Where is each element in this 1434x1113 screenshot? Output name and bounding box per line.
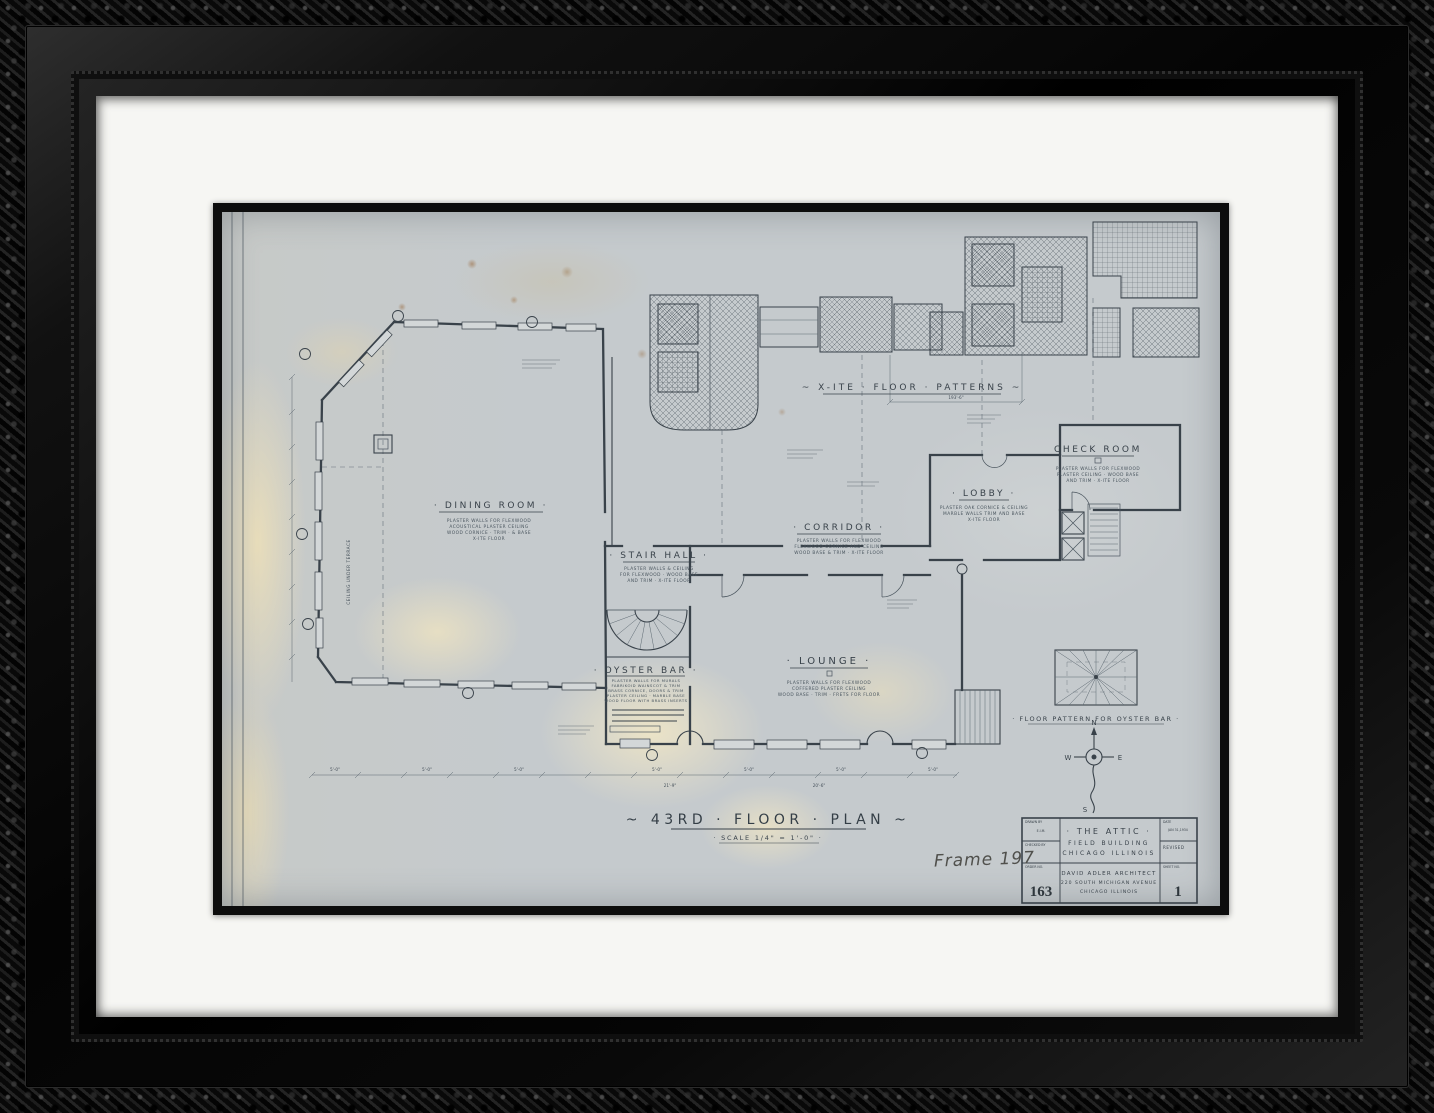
svg-text:PLASTER WALLS FOR FLEXWOOD: PLASTER WALLS FOR FLEXWOOD <box>447 518 532 524</box>
project-name: · THE ATTIC · <box>1067 827 1152 836</box>
checked-label: CHECKED BY <box>1025 843 1045 847</box>
svg-text:AND TRIM · X-ITE FLOOR: AND TRIM · X-ITE FLOOR <box>1066 478 1129 484</box>
svg-text:~ X-ITE · FLOOR · PATTERNS ~: ~ X-ITE · FLOOR · PATTERNS ~ <box>802 383 1023 393</box>
svg-text:WOOD BASE · TRIM · FRETS FOR F: WOOD BASE · TRIM · FRETS FOR FLOOR <box>778 692 880 698</box>
floor-plan-drawing: 5'-0" 5'-0" 5'-0" 5'-0" 5'-0" 5'-0" 5'-0… <box>222 212 1220 906</box>
stair-flights <box>955 504 1120 744</box>
svg-text:5'-0": 5'-0" <box>422 767 432 772</box>
svg-text:PLASTER OAK CORNICE & CEILING: PLASTER OAK CORNICE & CEILING <box>940 505 1028 511</box>
lobby-label: · LOBBY · <box>952 489 1016 499</box>
photograph: 5'-0" 5'-0" 5'-0" 5'-0" 5'-0" 5'-0" 5'-0… <box>213 203 1229 915</box>
patterns-title: ~ X-ITE · FLOOR · PATTERNS ~ <box>802 383 1023 394</box>
sheet-no-value: 1 <box>1174 884 1182 900</box>
svg-text:COFFERED PLASTER CEILING: COFFERED PLASTER CEILING <box>792 686 866 692</box>
compass-rose: N W E S <box>1065 719 1123 814</box>
revised-label: REVISED <box>1163 845 1185 850</box>
handwritten-frame-number: Frame 197 <box>934 848 1036 872</box>
drawing-title: ~ 43RD · FLOOR · PLAN ~ <box>626 812 911 828</box>
terrace-note: CEILING UNDER TERRACE <box>346 539 352 605</box>
oyster-bar-label: · OYSTER BAR · <box>594 666 699 676</box>
architect-name: DAVID ADLER ARCHITECT <box>1061 871 1156 877</box>
date-value: JAN 31,1934 <box>1167 828 1188 832</box>
svg-text:PLASTER WALLS FOR FLEXWOOD: PLASTER WALLS FOR FLEXWOOD <box>1056 466 1141 472</box>
date-label: DATE <box>1163 820 1171 824</box>
sheet-no-label: SHEET NO. <box>1163 865 1180 869</box>
room-label-check-room: CHECK ROOM PLASTER WALLS FOR FLEXWOOD PL… <box>1054 445 1142 484</box>
corridor-label: · CORRIDOR · <box>793 523 884 533</box>
compass-west: W <box>1065 754 1072 762</box>
svg-text:PLASTER WALLS FOR FLEXWOOD: PLASTER WALLS FOR FLEXWOOD <box>787 680 872 686</box>
svg-text:X-ITE FLOOR: X-ITE FLOOR <box>968 517 1000 523</box>
svg-text:FLEXWOOD CORNICE AND CEILING: FLEXWOOD CORNICE AND CEILING <box>794 544 883 550</box>
room-label-oyster-bar: · OYSTER BAR · PLASTER WALLS FOR MURALS … <box>594 666 699 703</box>
plan-title: ~ 43RD · FLOOR · PLAN ~ · SCALE 1/4" = 1… <box>626 812 911 843</box>
drawing-scale: · SCALE 1/4" = 1'-0" · <box>713 834 822 842</box>
svg-text:5'-0": 5'-0" <box>836 767 846 772</box>
dimension-20-6: 20'-6" <box>813 783 826 788</box>
svg-text:ACOUSTICAL PLASTER CEILING: ACOUSTICAL PLASTER CEILING <box>449 524 528 530</box>
drawing-sheet: 5'-0" 5'-0" 5'-0" 5'-0" 5'-0" 5'-0" 5'-0… <box>222 212 1220 906</box>
svg-text:PLASTER CEILING · WOOD BASE: PLASTER CEILING · WOOD BASE <box>1057 472 1139 478</box>
svg-text:5'-0": 5'-0" <box>744 767 754 772</box>
svg-text:MARBLE WALLS TRIM AND BASE: MARBLE WALLS TRIM AND BASE <box>943 511 1025 517</box>
order-no-value: 163 <box>1030 884 1053 900</box>
drawn-by-label: DRAWN BY <box>1025 820 1042 824</box>
svg-text:220 SOUTH MICHIGAN AVENUE: 220 SOUTH MICHIGAN AVENUE <box>1061 880 1157 886</box>
compass-north: N <box>1091 719 1096 727</box>
svg-text:CHICAGO ILLINOIS: CHICAGO ILLINOIS <box>1062 850 1155 857</box>
svg-text:WOOD BASE & TRIM · X-ITE FLOOR: WOOD BASE & TRIM · X-ITE FLOOR <box>794 550 884 556</box>
spiral-stair <box>607 610 687 650</box>
svg-text:WOOD FLOOR WITH BRASS INSERTS: WOOD FLOOR WITH BRASS INSERTS <box>604 698 687 703</box>
compass-east: E <box>1118 754 1122 762</box>
sheet-border-lines <box>232 212 243 906</box>
patterns-dimension: 193'-6" <box>948 395 963 400</box>
svg-text:PLASTER WALLS & CEILING: PLASTER WALLS & CEILING <box>624 566 694 572</box>
svg-text:AND TRIM · X-ITE FLOOR: AND TRIM · X-ITE FLOOR <box>627 578 690 584</box>
stair-hall-label: · STAIR HALL · <box>609 551 708 561</box>
svg-text:5'-0": 5'-0" <box>330 767 340 772</box>
svg-text:FOR FLEXWOOD · WOOD BASE: FOR FLEXWOOD · WOOD BASE <box>620 572 698 578</box>
room-label-dining: · DINING ROOM · PLASTER WALLS FOR FLEXWO… <box>346 501 548 605</box>
title-block: DRAWN BY E.I.M. CHECKED BY ORDER NO. 163… <box>1022 818 1197 903</box>
dining-room-label: · DINING ROOM · <box>434 501 548 511</box>
svg-text:FIELD BUILDING: FIELD BUILDING <box>1068 840 1150 847</box>
room-label-lobby: · LOBBY · PLASTER OAK CORNICE & CEILING … <box>940 489 1028 523</box>
svg-text:CHICAGO ILLINOIS: CHICAGO ILLINOIS <box>1080 889 1138 895</box>
drawn-by-value: E.I.M. <box>1037 829 1046 833</box>
svg-text:5'-0": 5'-0" <box>928 767 938 772</box>
svg-text:5'-0": 5'-0" <box>514 767 524 772</box>
lounge-label: · LOUNGE · <box>787 656 872 667</box>
check-room-label: CHECK ROOM <box>1054 445 1142 455</box>
room-label-lounge: · LOUNGE · PLASTER WALLS FOR FLEXWOOD CO… <box>778 656 880 698</box>
compass-south: S <box>1083 806 1088 814</box>
dimension-21-9: 21'-9" <box>664 783 677 788</box>
room-label-stair-hall: · STAIR HALL · PLASTER WALLS & CEILING F… <box>609 551 708 584</box>
svg-text:X-ITE FLOOR: X-ITE FLOOR <box>473 536 505 542</box>
svg-text:5'-0": 5'-0" <box>652 767 662 772</box>
svg-text:PLASTER WALLS FOR FLEXWOOD: PLASTER WALLS FOR FLEXWOOD <box>797 538 882 544</box>
svg-text:WOOD CORNICE · TRIM · & BASE: WOOD CORNICE · TRIM · & BASE <box>447 530 531 536</box>
room-label-corridor: · CORRIDOR · PLASTER WALLS FOR FLEXWOOD … <box>793 523 884 556</box>
mat-board: 5'-0" 5'-0" 5'-0" 5'-0" 5'-0" 5'-0" 5'-0… <box>96 96 1338 1017</box>
oyster-floor-pattern: · FLOOR PATTERN FOR OYSTER BAR · <box>1012 650 1179 724</box>
